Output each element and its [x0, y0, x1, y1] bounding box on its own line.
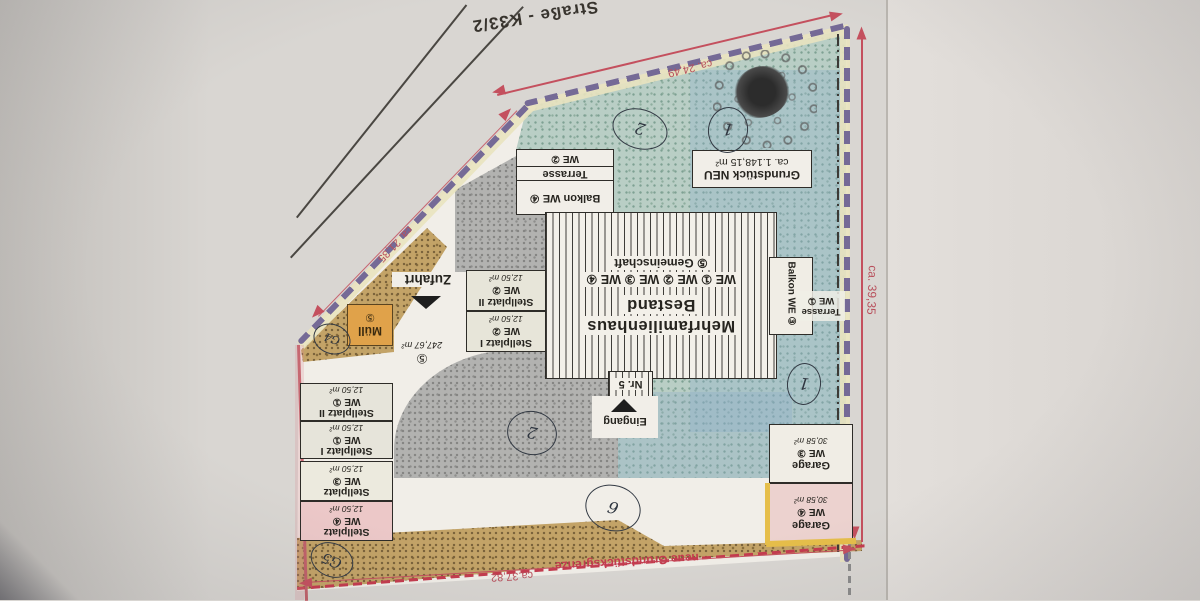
arrow-dim-right-top [857, 27, 867, 40]
arrow-dim-bottom-left [299, 578, 313, 589]
paper-right-area [888, 0, 1200, 600]
balcony-we4-box: Balkon WE ④ Terrasse WE ② [516, 149, 614, 215]
entrance-label: Eingang [594, 415, 656, 427]
arrow-dim-bottom-right [843, 544, 857, 555]
parking-we1-ii-we: WE ① [333, 395, 361, 407]
parcel-neu-label-box: Grundstück NEU ca. 1.148,15 m² [692, 150, 812, 188]
parking-we2-i-label: Stellplatz I [480, 336, 532, 349]
zufahrt-area-block: ⑤ 247,67 m² [394, 332, 450, 374]
terrace-we1-l2: WE ① [808, 295, 834, 306]
main-building: Mehrfamilienhaus Bestand WE ① WE ② WE ③ … [545, 212, 777, 379]
garage-we3-area: 30,58 m² [794, 436, 828, 446]
garage-we3-we: WE ③ [797, 446, 825, 458]
terrace-we1-label-box: Terrasse WE ① [797, 291, 845, 321]
parking-we1-ii-label: Stellplatz II [319, 407, 374, 420]
paper-left-shadow [0, 0, 300, 600]
garage-we4-label: Garage [792, 518, 830, 531]
terrace-we1-l1: Terrasse [802, 306, 841, 317]
parking-we4-we: WE ④ [333, 514, 361, 526]
parking-we2-ii-we: WE ② [492, 283, 520, 295]
site-plan-photo: { "plan": { "street_label": "Straße - K3… [0, 0, 1200, 600]
street-label: Straße - K33/2 [400, 0, 670, 47]
parking-we2-i: Stellplatz I WE ② 12,50 m² [466, 311, 546, 352]
parking-we1-i-we: WE ① [333, 433, 361, 445]
parking-we1-ii: Stellplatz II WE ① 12,50 m² [300, 383, 393, 421]
parcel-title: Grundstück NEU [704, 168, 800, 182]
parking-we3-we: WE ③ [333, 474, 361, 486]
parking-we2-i-area: 12,50 m² [489, 314, 523, 324]
parking-we2-i-we: WE ② [492, 324, 520, 336]
parking-we3-area: 12,50 m² [330, 464, 364, 474]
house-number: Nr. 5 [614, 379, 648, 391]
parking-we4-label: Stellplatz [323, 526, 369, 539]
parking-we2-ii-area: 12,50 m² [489, 273, 523, 283]
balcony-we3-label: Balkon WE ③ [786, 249, 797, 339]
arrow-dim-top-right [829, 9, 844, 22]
garage-we3-label: Garage [792, 458, 830, 471]
garage-we4-area: 30,58 m² [794, 495, 828, 505]
zufahrt-label: Zufahrt [392, 272, 464, 287]
dimension-line-right [861, 34, 863, 542]
parcel-area: ca. 1.148,15 m² [716, 156, 789, 168]
parking-we2-ii-label: Stellplatz II [479, 295, 534, 308]
garage-we4-we: WE ④ [797, 506, 825, 518]
building-title-1: Mehrfamilienhaus [582, 316, 740, 335]
parking-we1-i: Stellplatz I WE ① 12,50 m² [300, 421, 393, 459]
garage-we4-highlight-left [765, 483, 770, 545]
house-number-box: Nr. 5 [608, 371, 653, 398]
building-title-2: Bestand [622, 295, 701, 314]
parking-we1-i-area: 12,50 m² [330, 423, 364, 433]
parking-we3: Stellplatz WE ③ 12,50 m² [300, 461, 393, 501]
corner-shadow-bottom-left [0, 520, 120, 600]
parking-we2-ii: Stellplatz II WE ② 12,50 m² [466, 270, 546, 311]
parking-we3-label: Stellplatz [323, 486, 369, 499]
muell-label: Müll [358, 325, 382, 339]
arrow-dim-top-left [491, 85, 506, 98]
building-gemeinschaft: ⑤ Gemeinschaft [609, 256, 712, 270]
parking-we1-i-label: Stellplatz I [321, 445, 373, 458]
zufahrt-area: 247,67 m² [402, 340, 443, 351]
muell-number: ⑤ [365, 312, 375, 325]
terrasse-we4-label: Terrasse [517, 166, 613, 181]
dimension-right: ca. 39,35 [863, 235, 881, 345]
entrance-arrow-icon [611, 399, 637, 412]
building-we-row: WE ① WE ② WE ③ WE ④ [581, 272, 741, 287]
terrasse-we2-label: WE ② [551, 150, 579, 166]
garage-we4-box: Garage WE ④ 30,58 m² [769, 483, 853, 543]
parking-we4: Stellplatz WE ④ 12,50 m² [300, 501, 393, 541]
garage-we3-box: Garage WE ③ 30,58 m² [769, 424, 853, 483]
parking-we1-ii-area: 12,50 m² [330, 385, 364, 395]
parking-we4-area: 12,50 m² [330, 504, 364, 514]
zufahrt-zone-number: ⑤ [416, 350, 428, 366]
muell-box: Müll ⑤ [347, 304, 393, 346]
zufahrt-arrow-icon [411, 296, 441, 309]
balkon-we4-label: Balkon WE ④ [530, 181, 600, 214]
